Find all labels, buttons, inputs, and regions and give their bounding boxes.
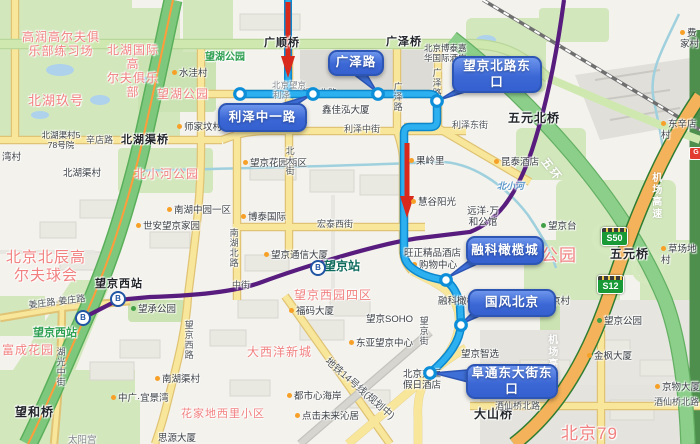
callout-wangjing-north-road-east-stop[interactable]: 望京北路东 口 [452, 56, 542, 93]
shield-number: S50 [602, 232, 627, 245]
callout-futong-east-street-east-stop[interactable]: 阜通东大街东 口 [466, 364, 558, 399]
callout-guangze-road[interactable]: 广泽路 [328, 50, 384, 76]
subway-station-icon[interactable]: B [110, 291, 126, 307]
subway-station-icon[interactable]: B [310, 260, 326, 276]
callout-lize-zhongyi-road-stop[interactable]: 利泽中一路 [218, 103, 307, 132]
highway-badge: G [689, 147, 700, 160]
road-shield-s50: S50 [601, 227, 628, 246]
shield-number: S12 [598, 280, 623, 293]
subway-station-icon[interactable]: B [75, 310, 91, 326]
callout-rongke-olive-city-stop[interactable]: 融科橄榄城 [466, 236, 544, 265]
map-canvas[interactable]: 望京北路利泽东街广泽路购物中心望京街 高润高尔夫俱 乐部练习场北湖国际高 尔夫俱… [0, 0, 700, 444]
callout-guofeng-beijing-stop[interactable]: 国风北京 [468, 289, 556, 317]
road-shield-s12: S12 [597, 275, 624, 294]
